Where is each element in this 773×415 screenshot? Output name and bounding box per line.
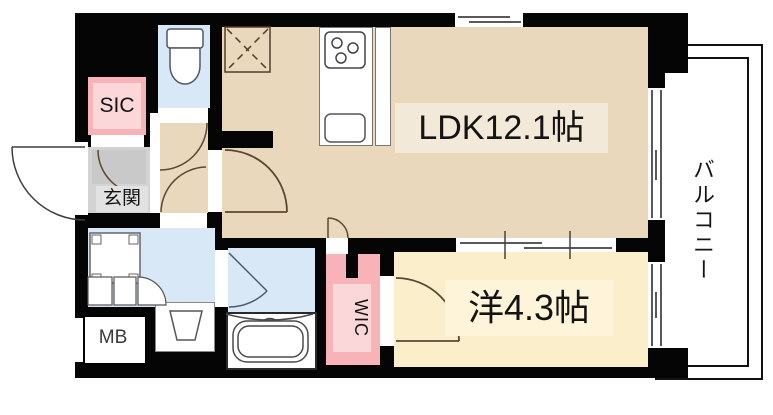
western-room-door-opening [380,276,394,346]
front-door-opening [74,142,88,215]
shoe-closet-slide-door [91,135,144,147]
wall-stub-ldk-entry [222,131,273,148]
western-balcony-window [648,262,665,348]
ldk-western-sliding-partition [456,238,616,252]
western-room-label: 洋4.3帖 [445,280,613,336]
bathtub-box [226,312,317,370]
bathroom-door-opening [215,250,228,307]
kitchen-counter [319,27,373,146]
toilet-door-opening [158,108,208,123]
walk-in-closet-wall-notch [346,254,358,278]
floorplan-canvas: LDK12.1帖 洋4.3帖 バルコニー 玄関 SIC WIC MB [0,0,773,415]
meter-box-side-opening [73,318,83,362]
toilet-room-floor [158,25,210,108]
ldk-balcony-window [648,88,665,220]
washbasin-counter [155,302,215,352]
washroom-floor [88,228,215,307]
hall-washroom-opening [160,213,207,228]
meter-box-label: MB [83,315,143,361]
entrance-step-area [92,150,146,184]
walk-in-closet-label: WIC [333,284,371,352]
wic-door-opening [326,238,348,254]
hallway-floor [160,123,208,213]
balcony-label: バルコニー [690,130,718,310]
north-window [455,13,523,27]
shoe-closet-label: SIC [93,83,141,129]
bathroom-floor [228,248,315,312]
entrance-label: 玄関 [96,186,148,212]
entrance-hall-opening [150,113,160,213]
ldk-room-label: LDK12.1帖 [395,103,608,153]
kitchen-counter-edge [375,27,391,146]
hall-ldk-door-opening [208,150,222,212]
